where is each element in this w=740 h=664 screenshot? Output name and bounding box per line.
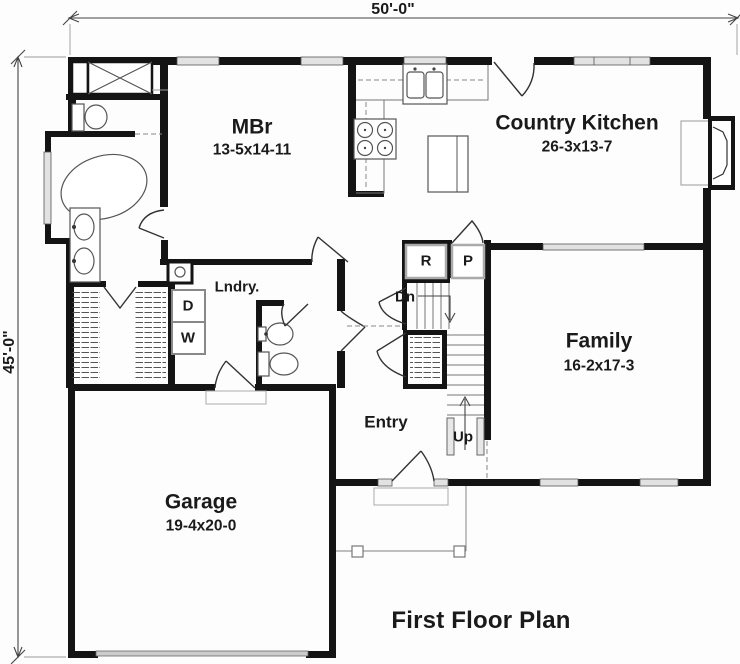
garage-door (96, 651, 308, 656)
kitchen-sink (403, 64, 447, 104)
utility-box (168, 262, 192, 283)
front-door (378, 451, 448, 486)
bath-door (139, 210, 164, 238)
room-size-kitchen: 26-3x13-7 (542, 139, 613, 155)
half-bath-sink (258, 323, 293, 345)
garage-entry-door (215, 361, 255, 388)
room-size-mbr: 13-5x14-11 (213, 142, 291, 158)
stove (354, 119, 396, 159)
room-label-family: Family (566, 331, 633, 352)
room-label-mbr: MBr (232, 117, 273, 138)
pantry-label: P (463, 254, 473, 269)
room-size-garage: 19-4x20-0 (166, 518, 237, 534)
refrigerator-label: R (421, 254, 432, 269)
bathtub (53, 144, 156, 230)
mbr-door (312, 237, 348, 262)
coat-closet (410, 337, 441, 382)
laundry-hall-door (341, 311, 365, 351)
dimension-height-label: 45'-0" (2, 330, 18, 373)
room-label-garage: Garage (165, 492, 237, 513)
half-bath-toilet (258, 352, 298, 376)
back-door (494, 62, 534, 96)
half-bath-door (282, 304, 308, 326)
room-label-laundry: Lndry. (215, 280, 260, 295)
walk-in-closet (72, 287, 166, 382)
dimension-width-label: 50'-0" (371, 2, 414, 18)
stairs-up-label: Up (453, 430, 473, 445)
dryer-label: D (183, 299, 194, 314)
linen-closet (72, 62, 168, 94)
kitchen-island (428, 136, 468, 192)
floor-plan: 50'-0" 45'-0" MBr 13-5x14-11 Country Kit… (0, 0, 740, 664)
washer-label: W (181, 331, 195, 346)
room-label-entry: Entry (364, 414, 407, 431)
stairs-down (417, 283, 455, 329)
double-vanity (70, 208, 100, 282)
room-label-kitchen: Country Kitchen (495, 113, 658, 134)
toilet (72, 104, 107, 131)
stairs-down-label: Dn (395, 290, 415, 305)
room-size-family: 16-2x17-3 (564, 358, 635, 374)
fireplace (681, 116, 735, 190)
page-title: First Floor Plan (391, 609, 570, 633)
